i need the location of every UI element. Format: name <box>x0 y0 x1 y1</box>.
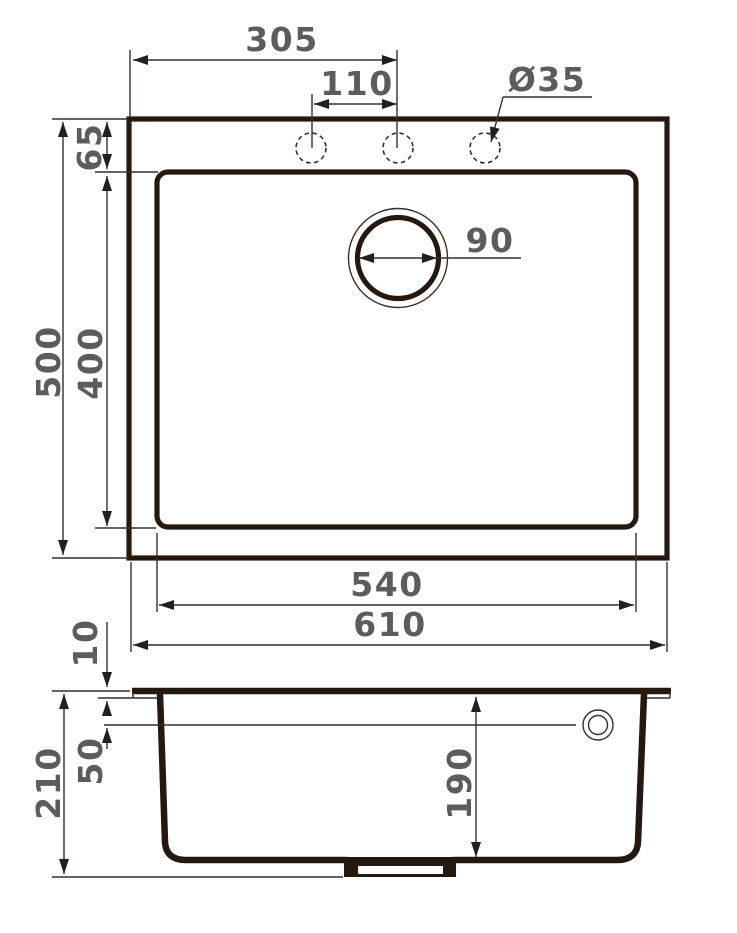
dim-label-rim-to-bowl: 65 <box>70 123 109 172</box>
tap-hole-center <box>383 133 413 163</box>
dim-label-rim-thickness: 10 <box>66 619 105 668</box>
section-drain-fitting <box>344 857 456 877</box>
sink-bowl-outline <box>157 172 636 527</box>
sink-dimension-drawing: 305 110 Ø35 90 500 <box>0 0 737 933</box>
tap-hole-right <box>470 133 500 163</box>
dim-label-overall-depth: 500 <box>29 325 68 398</box>
dim-tap-hole-spacing: 110 <box>312 64 397 148</box>
dim-label-tap-hole-offset: 305 <box>245 20 318 59</box>
top-view: 305 110 Ø35 90 500 <box>29 20 667 652</box>
dim-label-bowl-inner-depth: 190 <box>440 746 479 819</box>
dim-label-tap-hole-spacing: 110 <box>320 64 393 103</box>
dim-rim-thickness: 10 <box>66 619 158 713</box>
dim-inner-bowl-depth: 400 <box>71 176 156 528</box>
dim-label-drain-diameter: 90 <box>466 221 515 260</box>
sink-outer-outline <box>129 119 667 558</box>
dim-label-inner-bowl-width: 540 <box>350 565 423 604</box>
dim-label-inner-bowl-depth: 400 <box>71 326 110 399</box>
section-view: 210 10 50 190 <box>29 619 671 877</box>
tap-hole-left <box>296 133 326 163</box>
dim-inner-bowl-width: 540 <box>157 533 636 612</box>
section-overflow-hole <box>583 710 613 740</box>
dim-label-tap-hole-diameter: Ø35 <box>508 60 586 99</box>
section-left-wall <box>160 694 347 860</box>
dim-label-overflow-offset: 50 <box>71 737 110 786</box>
dim-bowl-inner-depth: 190 <box>440 697 479 857</box>
dim-rim-to-bowl: 65 <box>70 122 158 172</box>
drawing-canvas: 305 110 Ø35 90 500 <box>0 0 737 933</box>
dim-label-overall-width: 610 <box>353 605 426 644</box>
dim-label-overall-height: 210 <box>29 746 68 819</box>
section-right-wall <box>453 694 644 860</box>
dim-overflow-offset: 50 <box>71 728 110 785</box>
dim-tap-hole-diameter: Ø35 <box>491 60 592 142</box>
